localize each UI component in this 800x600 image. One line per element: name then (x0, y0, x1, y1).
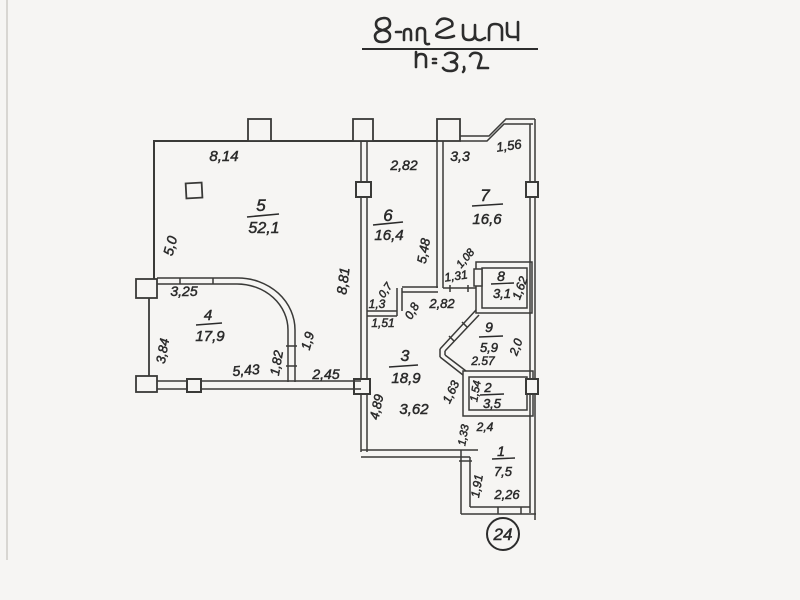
svg-text:18,9: 18,9 (391, 370, 421, 387)
svg-text:24: 24 (493, 525, 513, 544)
svg-text:3: 3 (401, 348, 410, 365)
svg-text:1,51: 1,51 (371, 316, 394, 330)
svg-text:2: 2 (483, 380, 492, 395)
svg-text:3,3: 3,3 (450, 148, 470, 164)
svg-text:1: 1 (497, 443, 505, 459)
svg-text:3,25: 3,25 (170, 283, 197, 299)
svg-text:2,26: 2,26 (493, 487, 520, 502)
svg-text:2,82: 2,82 (428, 296, 455, 311)
svg-text:3,62: 3,62 (399, 401, 429, 418)
svg-text:3,1: 3,1 (493, 286, 511, 301)
svg-text:3,5: 3,5 (483, 396, 502, 411)
svg-text:7: 7 (480, 186, 490, 205)
svg-text:16,6: 16,6 (472, 211, 502, 228)
svg-text:9: 9 (485, 319, 493, 335)
svg-text:8: 8 (497, 268, 505, 284)
svg-text:2,82: 2,82 (389, 157, 417, 173)
svg-text:5,43: 5,43 (232, 361, 261, 379)
svg-text:5: 5 (256, 196, 266, 215)
svg-text:52,1: 52,1 (248, 220, 279, 237)
svg-text:16,4: 16,4 (374, 227, 403, 244)
svg-text:7,5: 7,5 (494, 464, 513, 479)
svg-text:6: 6 (383, 206, 393, 225)
svg-text:4: 4 (204, 307, 212, 324)
svg-text:2.57: 2.57 (470, 354, 496, 368)
svg-text:17,9: 17,9 (195, 328, 225, 345)
svg-text:2,4: 2,4 (476, 420, 494, 434)
svg-text:8,14: 8,14 (209, 148, 238, 165)
svg-text:8,81: 8,81 (333, 266, 352, 295)
svg-text:2,45: 2,45 (311, 366, 339, 382)
svg-text:5,9: 5,9 (480, 340, 498, 355)
